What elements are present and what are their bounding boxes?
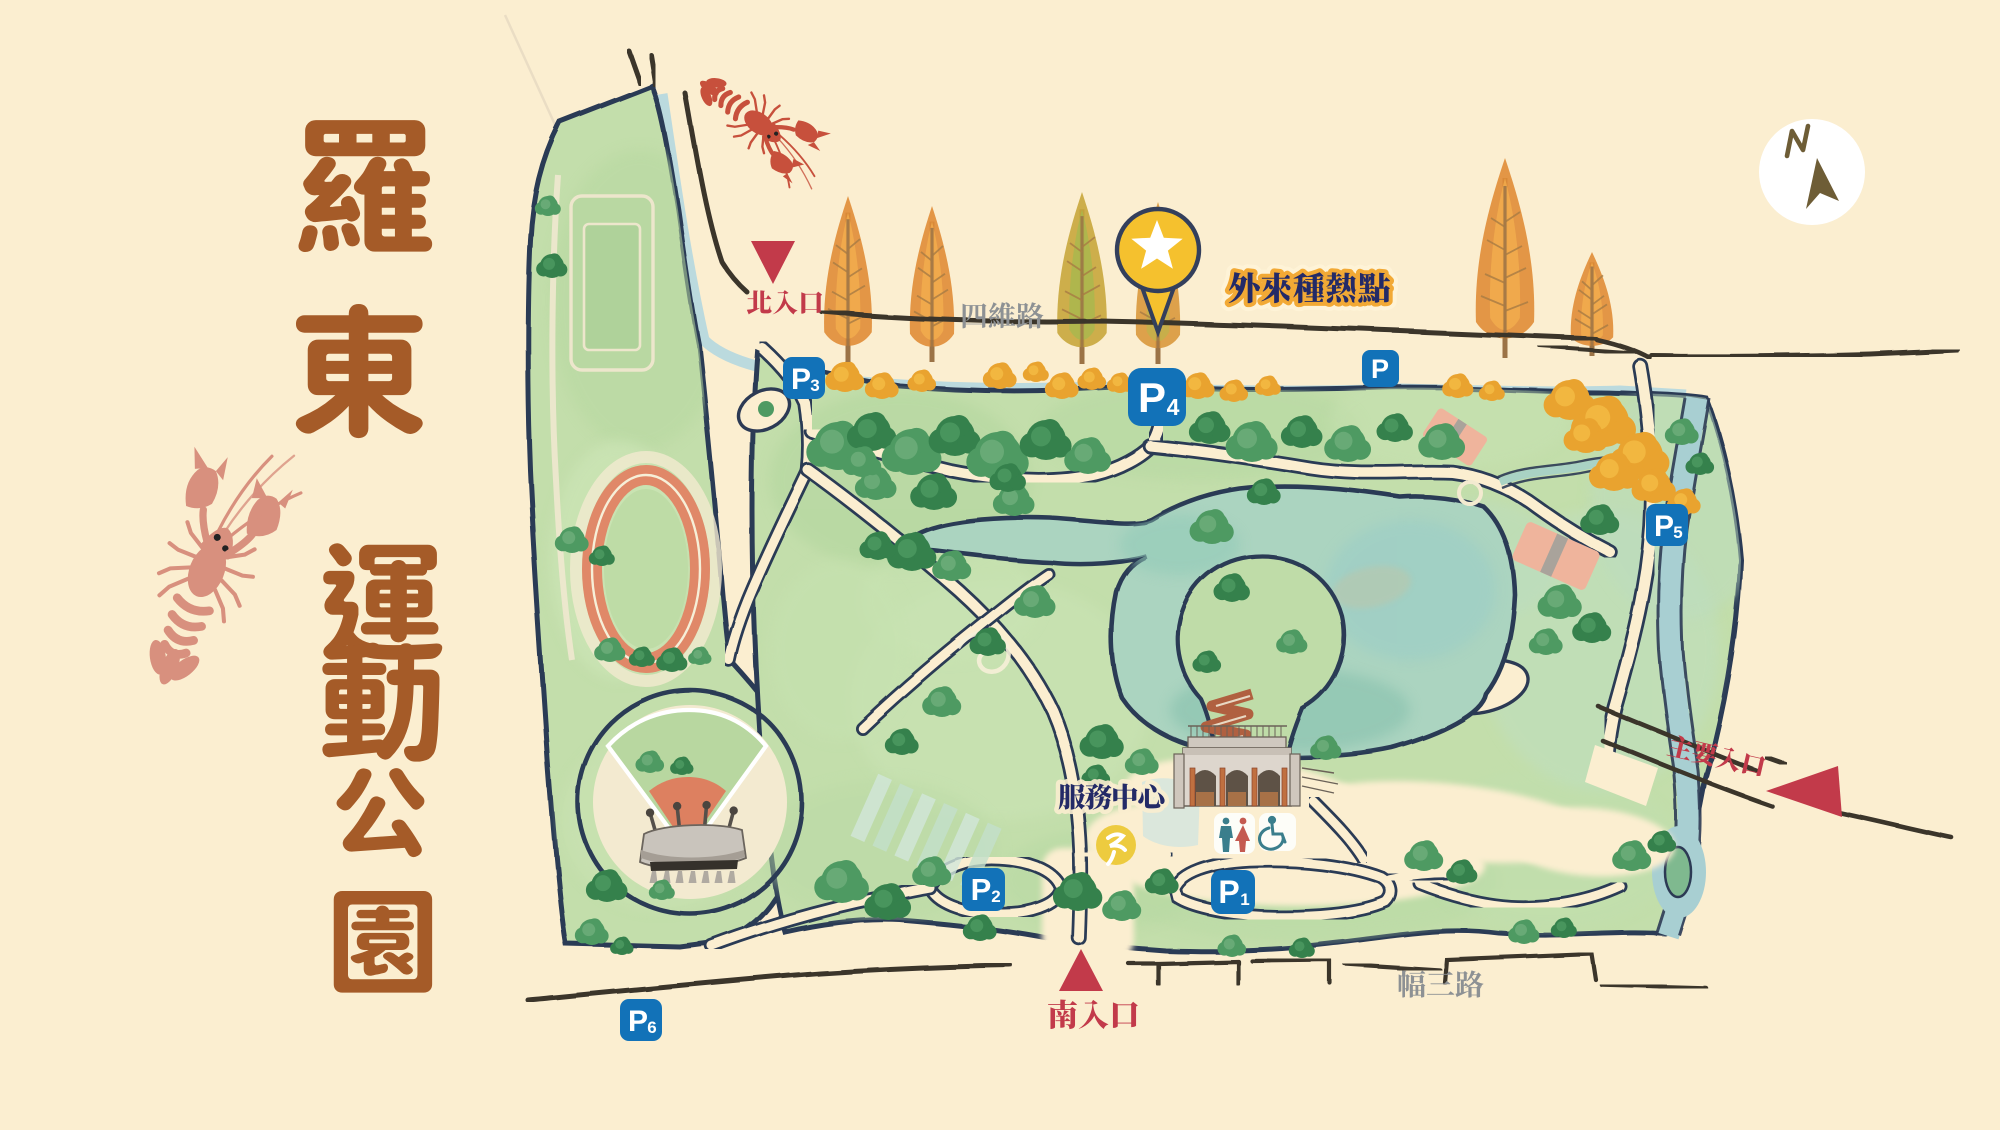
- svg-text:2: 2: [991, 887, 1000, 906]
- svg-text:P: P: [1138, 374, 1166, 421]
- svg-text:3: 3: [810, 376, 819, 395]
- svg-text:5: 5: [1673, 523, 1682, 542]
- svg-text:P: P: [628, 1005, 648, 1038]
- svg-text:1: 1: [1240, 890, 1249, 909]
- svg-text:P: P: [1371, 354, 1389, 384]
- svg-text:P: P: [971, 872, 992, 907]
- svg-text:P: P: [791, 363, 811, 396]
- svg-text:P: P: [1654, 510, 1674, 543]
- svg-text:4: 4: [1167, 394, 1180, 420]
- svg-text:6: 6: [647, 1018, 656, 1037]
- svg-text:P: P: [1218, 874, 1239, 910]
